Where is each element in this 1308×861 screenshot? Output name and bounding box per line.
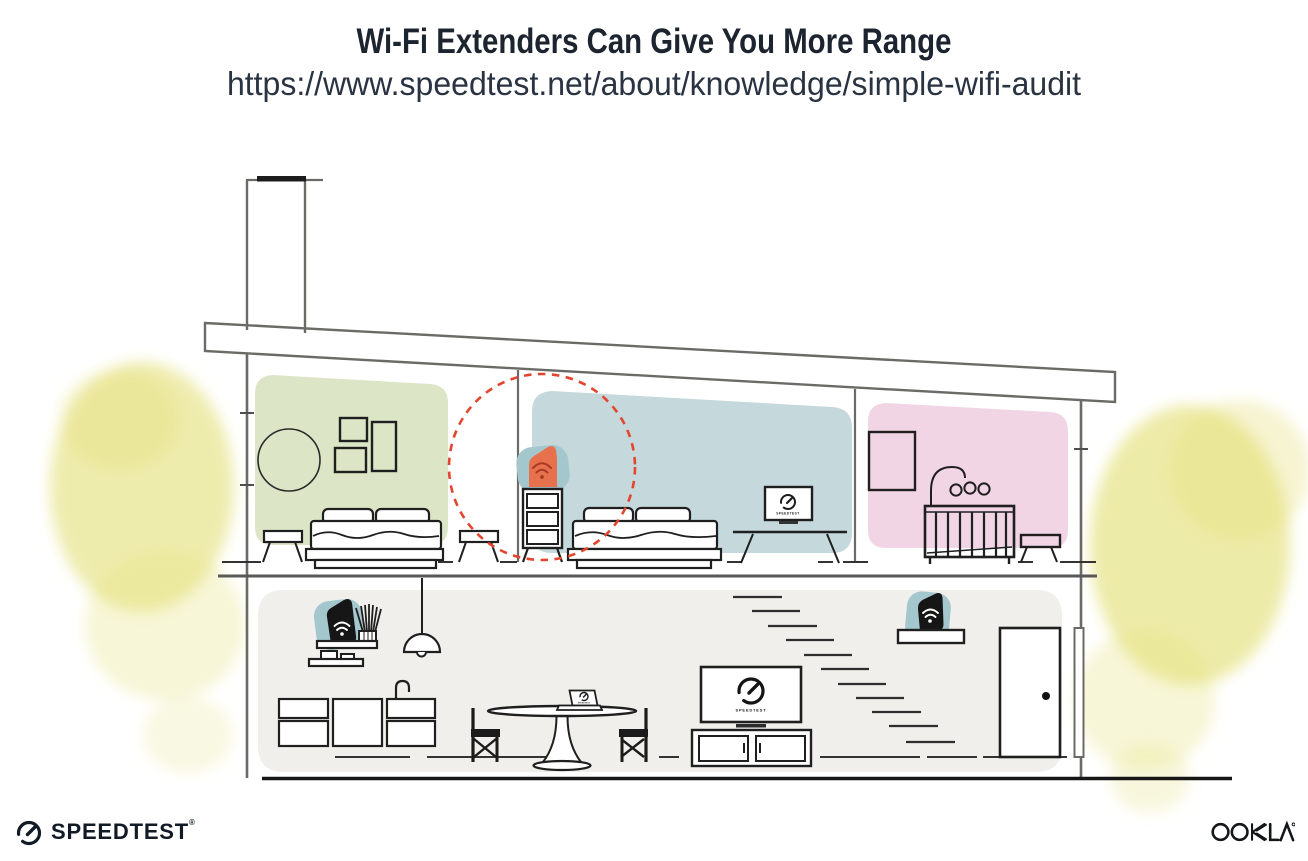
- registered-mark: ®: [189, 818, 196, 827]
- chimney: [246, 176, 323, 333]
- door-knob: [1042, 692, 1050, 700]
- foliage-right: [1075, 400, 1308, 813]
- ookla-logo: OOKLA: [1211, 820, 1295, 851]
- tv-base: [779, 521, 798, 524]
- house-illustration: SPEEDTEST: [0, 0, 1308, 861]
- front-door: [1000, 628, 1060, 757]
- bedroom-tv: SPEEDTEST: [765, 487, 812, 524]
- speedtest-gauge-icon: [14, 817, 44, 847]
- ookla-k: [1252, 824, 1266, 840]
- wall-shelf-upper: [317, 641, 377, 648]
- bedroom-tv-label: SPEEDTEST: [776, 512, 799, 516]
- speedtest-wordmark-text: SPEEDTEST: [51, 819, 189, 844]
- chimney-cap: [257, 176, 306, 182]
- living-room-tv: SPEEDTEST: [692, 667, 811, 766]
- laptop-label: SPEEDTEST: [578, 703, 591, 705]
- living-tv-label: SPEEDTEST: [736, 708, 767, 713]
- hall-shelf: [898, 630, 964, 643]
- speedtest-logo: SPEEDTEST®: [14, 817, 196, 847]
- foliage-left: [50, 362, 245, 773]
- ookla-wordmark-icon: [1211, 820, 1295, 846]
- nursery-stool: [1021, 535, 1060, 562]
- door-sidelight: [1075, 628, 1084, 757]
- tv-stand: [692, 730, 811, 766]
- tv-base: [736, 724, 766, 728]
- nightstand-left: [263, 531, 302, 562]
- nursery-pink-bg: [868, 403, 1068, 548]
- speedtest-wordmark: SPEEDTEST®: [51, 818, 196, 846]
- wifi-extender-highlighted: [515, 443, 572, 562]
